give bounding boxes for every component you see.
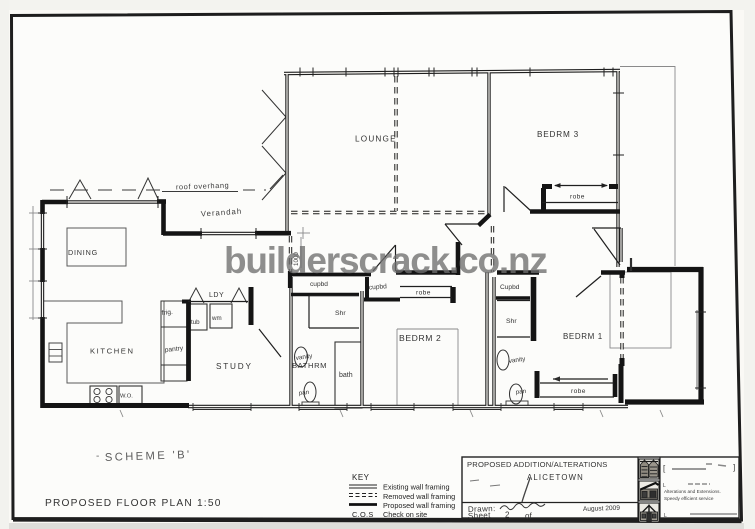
svg-text:L: L xyxy=(664,513,667,519)
svg-text:]: ] xyxy=(733,463,735,472)
svg-text:wm: wm xyxy=(211,315,222,322)
svg-text:of: of xyxy=(525,512,532,521)
svg-text:Removed wall framing: Removed wall framing xyxy=(383,492,455,501)
svg-text:Existing wall framing: Existing wall framing xyxy=(383,483,450,492)
svg-text:cupbd: cupbd xyxy=(369,283,388,291)
svg-text:KEY: KEY xyxy=(352,473,370,482)
svg-text:Proposed wall framing: Proposed wall framing xyxy=(383,501,455,510)
svg-text:Sheet: Sheet xyxy=(468,511,492,521)
svg-text:PROPOSED FLOOR PLAN 1:50: PROPOSED FLOOR PLAN 1:50 xyxy=(45,498,222,509)
svg-text:2: 2 xyxy=(505,511,510,520)
svg-text:August 2009: August 2009 xyxy=(583,505,621,513)
svg-text:KITCHEN: KITCHEN xyxy=(90,347,135,356)
svg-text:W.O.: W.O. xyxy=(120,394,133,400)
svg-text:C.O.S: C.O.S xyxy=(352,510,374,519)
svg-text:frig.: frig. xyxy=(161,309,173,317)
svg-text:robe: robe xyxy=(570,194,585,201)
svg-text:Cupbd: Cupbd xyxy=(500,284,520,291)
svg-text:Shr: Shr xyxy=(506,318,517,325)
svg-text:ALICETOWN: ALICETOWN xyxy=(527,473,584,482)
svg-text:PROPOSED ADDITION/ALTERATIONS: PROPOSED ADDITION/ALTERATIONS xyxy=(467,460,608,469)
svg-text:Speedy efficient service: Speedy efficient service xyxy=(664,496,714,501)
svg-text:LDY: LDY xyxy=(209,292,224,299)
svg-text:tub: tub xyxy=(191,319,200,326)
svg-text:BEDRM 1: BEDRM 1 xyxy=(563,332,603,341)
svg-text:bath: bath xyxy=(339,372,353,379)
svg-text:BATHRM: BATHRM xyxy=(292,361,327,370)
svg-text:BEDRM 2: BEDRM 2 xyxy=(399,333,441,343)
svg-text:STUDY: STUDY xyxy=(216,362,253,371)
svg-text:Shr: Shr xyxy=(335,310,346,317)
svg-text:Alterations and Extensions.: Alterations and Extensions. xyxy=(664,489,721,494)
svg-text:Check on site: Check on site xyxy=(383,510,427,519)
svg-text:-: - xyxy=(96,451,99,462)
svg-text:robe: robe xyxy=(571,388,586,395)
svg-text:DINING: DINING xyxy=(68,248,98,257)
svg-text:builderscrack.co.nz: builderscrack.co.nz xyxy=(224,240,547,281)
svg-text:BEDRM 3: BEDRM 3 xyxy=(537,130,579,139)
svg-text:cupbd: cupbd xyxy=(310,281,328,288)
svg-text:LOUNGE: LOUNGE xyxy=(355,135,397,144)
svg-text:robe: robe xyxy=(416,290,431,297)
svg-text:pan: pan xyxy=(515,388,527,396)
svg-text:roof overhang: roof overhang xyxy=(176,181,230,192)
svg-text:pan: pan xyxy=(298,389,310,397)
